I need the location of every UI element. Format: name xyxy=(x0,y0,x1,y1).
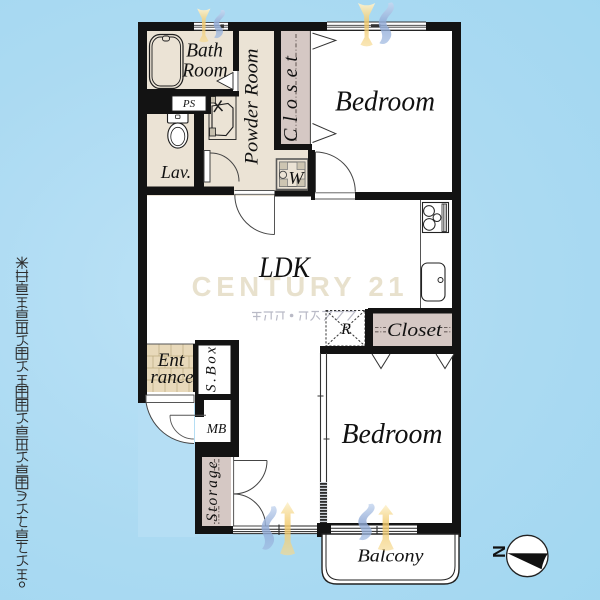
svg-text:N: N xyxy=(489,545,509,558)
svg-text:S.Box: S.Box xyxy=(204,347,220,392)
svg-text:Lav.: Lav. xyxy=(160,162,191,182)
svg-text:LDK: LDK xyxy=(258,251,312,284)
svg-text:Bedroom: Bedroom xyxy=(342,419,443,450)
svg-text:rance: rance xyxy=(150,367,193,388)
svg-text:Bath: Bath xyxy=(186,41,223,62)
svg-text:Room: Room xyxy=(181,61,228,82)
svg-text:MB: MB xyxy=(206,421,227,436)
svg-text:PS: PS xyxy=(182,98,196,110)
svg-text:Powder Room: Powder Room xyxy=(242,49,263,166)
svg-text:R: R xyxy=(340,321,351,338)
svg-text:W: W xyxy=(289,168,306,188)
svg-text:Storage: Storage xyxy=(204,461,221,521)
svg-text:Closet: Closet xyxy=(387,321,443,341)
svg-text:Bedroom: Bedroom xyxy=(335,87,435,118)
